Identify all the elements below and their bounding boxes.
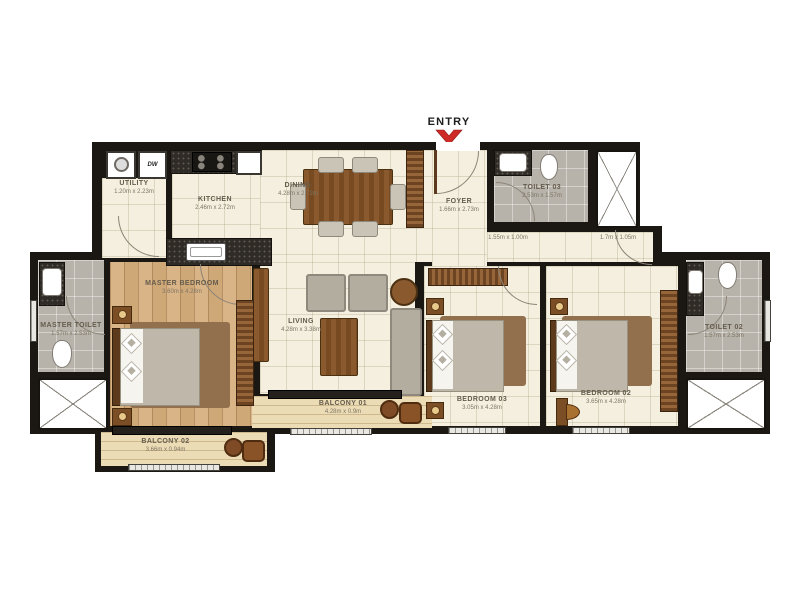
toilet02-basin-icon <box>688 270 703 294</box>
foyer-cabinet <box>406 150 424 228</box>
armchair <box>306 274 346 312</box>
washing-machine-icon <box>106 151 136 179</box>
lamp-icon <box>118 310 127 319</box>
window-icon <box>764 300 771 342</box>
coffee-table <box>320 318 358 376</box>
lamp-icon <box>555 302 564 311</box>
dishwasher-icon: DW <box>138 151 167 179</box>
kitchen-sink-icon <box>186 243 226 261</box>
plant-pot-icon <box>242 440 265 462</box>
toilet02-wc-icon <box>718 262 737 289</box>
plant-pot-icon <box>224 438 243 457</box>
window-icon <box>30 300 37 342</box>
dining-chair <box>318 221 344 237</box>
toilet03-basin-icon <box>499 153 527 172</box>
lift-shaft-top <box>596 150 638 228</box>
lamp-icon <box>431 302 440 311</box>
nightstand <box>112 408 132 426</box>
side-table-round <box>390 278 418 306</box>
balcony02-sliding-door <box>112 426 232 435</box>
tv-unit <box>253 268 269 362</box>
dining-chair <box>290 184 306 210</box>
dining-chair <box>352 157 378 173</box>
left-shaft <box>38 378 108 430</box>
nightstand <box>426 402 444 419</box>
dishwasher-label: DW <box>148 162 158 168</box>
passage-dim-1: 1.55m x 1.00m <box>468 235 548 241</box>
kitchen-appliance <box>236 151 262 175</box>
lamp-icon <box>431 406 440 415</box>
nightstand <box>112 306 132 324</box>
dining-chair <box>390 184 406 210</box>
window-icon <box>290 428 372 435</box>
window-icon <box>128 464 220 471</box>
nightstand <box>550 298 568 315</box>
entry-opening <box>436 142 480 151</box>
dining-table <box>303 169 393 225</box>
entry-label: ENTRY <box>418 116 480 128</box>
bedroom02-wardrobe <box>660 290 678 412</box>
master-toilet-basin-icon <box>42 268 62 296</box>
dining-chair <box>352 221 378 237</box>
armchair <box>348 274 388 312</box>
dining-chair <box>318 157 344 173</box>
master-toilet-wc-icon <box>52 340 72 368</box>
window-icon <box>572 427 630 434</box>
passage-dim-2: 1.7m x 1.05m <box>582 235 654 241</box>
window-icon <box>448 427 506 434</box>
lamp-icon <box>118 412 127 421</box>
entry-door-leaf <box>434 150 437 194</box>
washer-drum-icon <box>114 157 129 172</box>
kitchen-floor <box>172 172 260 238</box>
hob-icon <box>192 152 232 172</box>
right-shaft <box>686 378 766 430</box>
bedroom03-wardrobe <box>428 268 508 286</box>
floor-plan: ENTRY DW <box>0 0 800 600</box>
sofa <box>390 308 422 396</box>
balcony01-sliding-door <box>268 390 402 399</box>
plant-pot-icon <box>399 402 422 424</box>
master-bedroom-wardrobe <box>236 300 254 406</box>
toilet03-wc-icon <box>540 154 558 180</box>
plant-pot-icon <box>380 400 399 419</box>
nightstand <box>426 298 444 315</box>
